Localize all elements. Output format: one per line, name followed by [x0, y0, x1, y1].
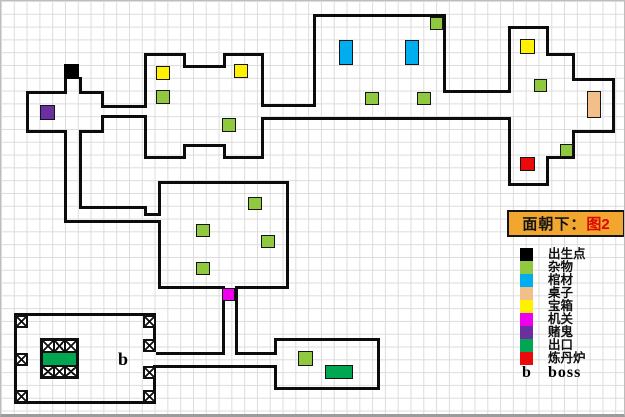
legend: 出生点杂物棺材桌子宝箱机关赌鬼出口炼丹炉 b boss — [520, 248, 586, 381]
wall-segment — [144, 213, 161, 216]
wall-segment — [14, 401, 156, 404]
boss-room-marker: b — [113, 349, 133, 370]
map-item-junk — [365, 92, 379, 105]
legend-rows: 出生点杂物棺材桌子宝箱机关赌鬼出口炼丹炉 — [520, 248, 586, 365]
blocked-cell-icon — [54, 366, 66, 378]
wall-segment — [144, 156, 186, 159]
wall-segment — [546, 53, 575, 56]
map-item-junk — [560, 144, 573, 157]
blocked-cell-icon — [42, 366, 54, 378]
map-item-junk — [156, 90, 170, 104]
wall-segment — [313, 14, 316, 104]
wall-segment — [508, 26, 511, 90]
wall-segment — [261, 117, 264, 159]
map-item-coffin — [405, 40, 419, 65]
wall-segment — [508, 118, 511, 186]
wall-segment — [235, 286, 238, 355]
legend-swatch-spawn — [520, 248, 533, 261]
wall-segment — [443, 14, 446, 90]
wall-segment — [612, 78, 615, 133]
wall-segment — [223, 156, 264, 159]
blocked-cell-icon — [143, 390, 156, 403]
wall-segment — [158, 220, 161, 289]
legend-swatch-gambler — [520, 326, 533, 339]
blocked-cell-icon — [65, 366, 77, 378]
map-item-junk — [298, 351, 313, 366]
legend-row-boss: b boss — [520, 365, 586, 381]
map-item-chest — [156, 66, 170, 80]
blocked-cell-icon — [65, 340, 77, 352]
wall-segment — [64, 130, 67, 223]
blocked-cell-icon — [143, 315, 156, 328]
wall-segment — [158, 181, 161, 213]
legend-boss-symbol: b — [520, 365, 533, 381]
boss-room-table — [40, 338, 79, 379]
note-figure: 图2 — [586, 213, 609, 234]
map-item-junk — [248, 197, 262, 210]
wall-segment — [64, 220, 161, 223]
wall-segment — [183, 65, 226, 68]
wall-segment — [572, 53, 575, 81]
legend-swatch-junk — [520, 261, 533, 274]
legend-label: 出生点 — [548, 248, 586, 261]
map-item-chest — [520, 39, 535, 54]
wall-segment — [158, 286, 225, 289]
map-item-junk — [430, 17, 443, 30]
wall-segment — [572, 130, 615, 133]
map-item-exit — [325, 365, 353, 379]
wall-segment — [235, 352, 277, 355]
wall-segment — [274, 338, 277, 352]
wall-segment — [158, 181, 289, 184]
wall-segment — [79, 77, 82, 93]
legend-boss-label: boss — [548, 365, 581, 381]
wall-segment — [183, 144, 226, 147]
map-item-exit — [42, 352, 77, 366]
legend-label: 机关 — [548, 313, 573, 326]
wall-segment — [223, 53, 264, 56]
map-note: 面朝下：图2 — [507, 210, 625, 237]
legend-label: 棺材 — [548, 274, 573, 287]
wall-segment — [274, 387, 380, 390]
blocked-cell-icon — [15, 390, 28, 403]
wall-segment — [79, 206, 147, 209]
map-item-table — [587, 91, 601, 118]
map-item-coffin — [339, 40, 353, 65]
wall-segment — [101, 115, 147, 118]
map-item-junk — [417, 92, 431, 105]
wall-segment — [144, 53, 186, 56]
map-item-junk — [196, 262, 210, 275]
wall-segment — [261, 117, 511, 120]
legend-swatch-coffin — [520, 274, 533, 287]
legend-label: 杂物 — [548, 261, 573, 274]
game-map-screenshot: b 面朝下：图2 出生点杂物棺材桌子宝箱机关赌鬼出口炼丹炉 b boss — [0, 0, 625, 417]
map-item-junk — [261, 235, 275, 248]
wall-segment — [26, 130, 67, 133]
legend-swatch-table — [520, 287, 533, 300]
map-item-gambler — [40, 105, 55, 120]
note-prefix: 面朝下： — [522, 213, 586, 234]
blocked-cell-icon — [54, 340, 66, 352]
wall-segment — [26, 91, 29, 133]
wall-segment — [377, 338, 380, 390]
blocked-cell-icon — [143, 339, 156, 352]
blocked-cell-icon — [15, 315, 28, 328]
wall-segment — [144, 53, 147, 105]
wall-segment — [261, 104, 316, 107]
blocked-cell-icon — [143, 366, 156, 379]
legend-swatch-exit — [520, 339, 533, 352]
map-item-junk — [534, 79, 547, 92]
legend-label: 宝箱 — [548, 300, 573, 313]
wall-segment — [286, 181, 289, 289]
legend-label: 出口 — [548, 339, 573, 352]
wall-segment — [14, 313, 156, 316]
map-item-junk — [222, 118, 236, 132]
wall-segment — [101, 105, 147, 108]
map-item-furnace — [520, 157, 535, 171]
legend-label: 赌鬼 — [548, 326, 573, 339]
wall-segment — [443, 90, 511, 93]
wall-segment — [313, 14, 446, 17]
blocked-row — [42, 366, 77, 378]
wall-segment — [156, 352, 222, 355]
wall-segment — [572, 78, 615, 81]
legend-label: 炼丹炉 — [548, 352, 586, 365]
wall-segment — [79, 130, 82, 209]
blocked-cell-icon — [15, 353, 28, 366]
wall-segment — [64, 77, 67, 93]
legend-swatch-chest — [520, 300, 533, 313]
blocked-row — [42, 340, 77, 352]
wall-segment — [508, 183, 549, 186]
wall-segment — [235, 286, 289, 289]
wall-segment — [261, 53, 264, 104]
map-item-mechanism — [222, 288, 235, 301]
blocked-cell-icon — [42, 340, 54, 352]
wall-segment — [274, 338, 380, 341]
map-item-chest — [234, 64, 248, 78]
map-item-junk — [196, 224, 210, 237]
wall-segment — [156, 365, 277, 368]
wall-segment — [144, 118, 147, 159]
map-item-spawn — [64, 64, 79, 79]
wall-segment — [508, 26, 549, 29]
wall-segment — [546, 156, 549, 186]
legend-swatch-mechanism — [520, 313, 533, 326]
wall-segment — [546, 26, 549, 56]
wall-segment — [26, 91, 67, 94]
legend-label: 桌子 — [548, 287, 573, 300]
